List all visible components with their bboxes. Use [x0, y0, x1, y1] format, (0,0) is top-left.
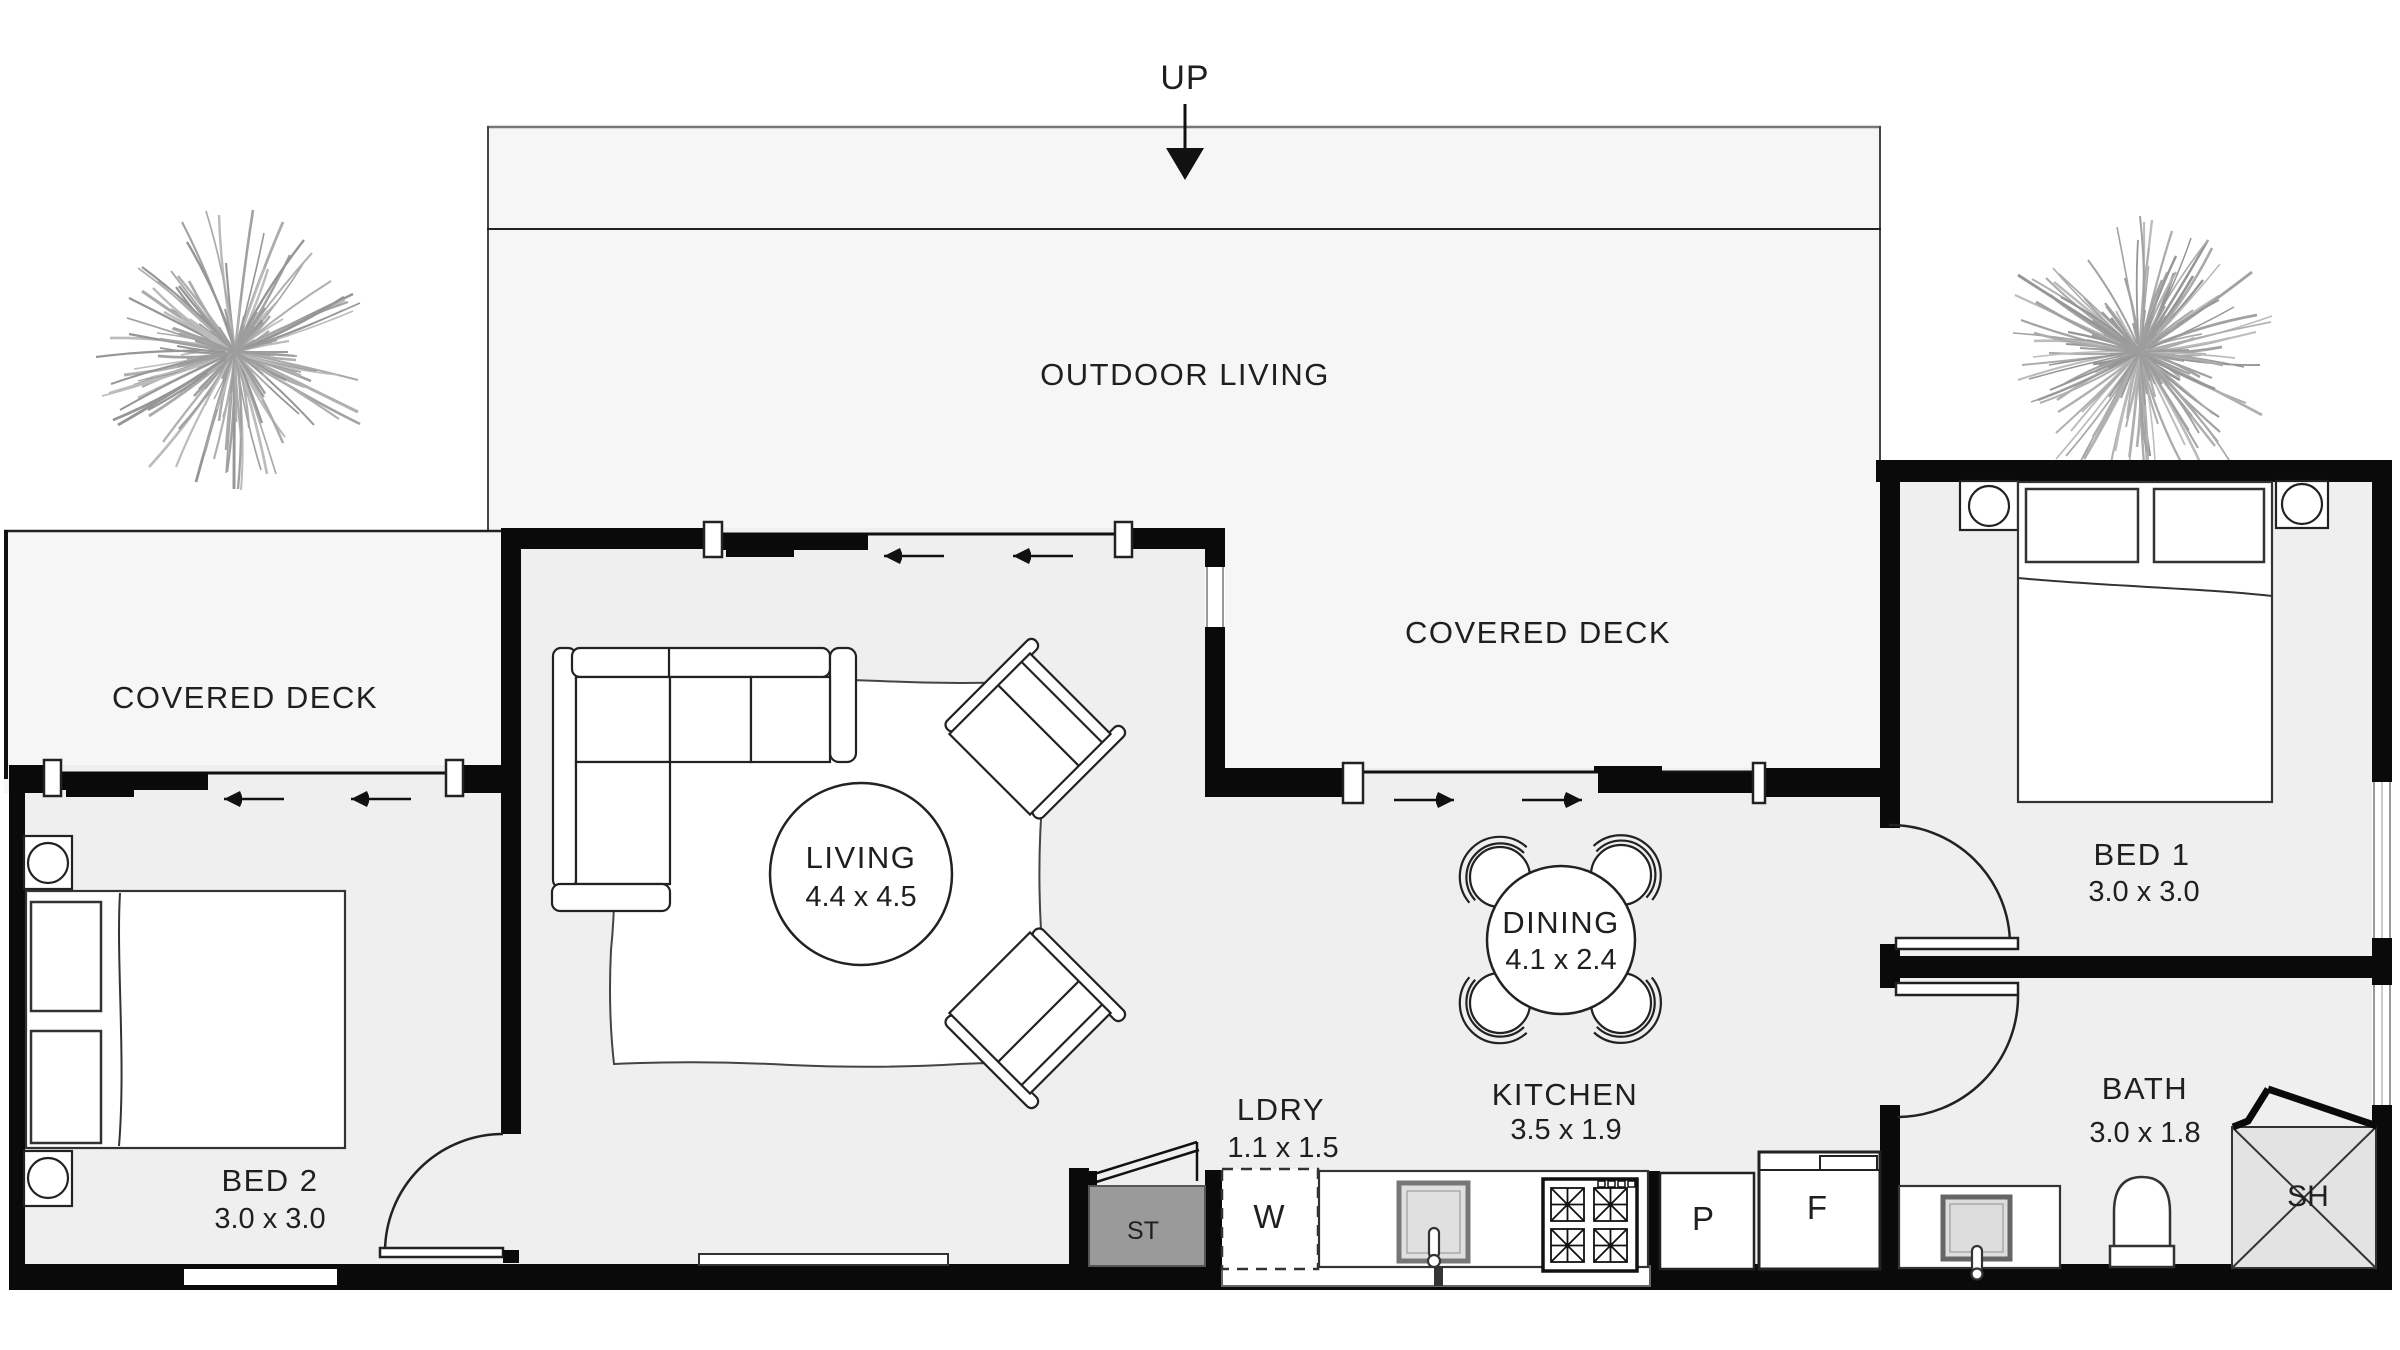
svg-text:KITCHEN: KITCHEN — [1492, 1077, 1639, 1112]
svg-text:UP: UP — [1160, 59, 1209, 97]
svg-text:1.1 x 1.5: 1.1 x 1.5 — [1227, 1132, 1338, 1164]
svg-text:W: W — [1253, 1198, 1285, 1235]
svg-text:LDRY: LDRY — [1237, 1092, 1325, 1127]
svg-text:SH: SH — [2287, 1180, 2329, 1213]
svg-text:BED 1: BED 1 — [2093, 837, 2190, 872]
svg-text:DINING: DINING — [1502, 905, 1620, 940]
svg-text:BATH: BATH — [2102, 1071, 2188, 1106]
svg-text:P: P — [1692, 1200, 1714, 1237]
svg-text:OUTDOOR LIVING: OUTDOOR LIVING — [1040, 357, 1330, 392]
svg-text:F: F — [1807, 1189, 1827, 1226]
svg-text:ST: ST — [1127, 1217, 1159, 1245]
svg-text:4.1 x 2.4: 4.1 x 2.4 — [1505, 944, 1616, 976]
svg-text:BED 2: BED 2 — [221, 1163, 318, 1198]
svg-text:COVERED DECK: COVERED DECK — [1405, 615, 1671, 650]
svg-text:LIVING: LIVING — [806, 840, 917, 875]
svg-text:3.0 x 1.8: 3.0 x 1.8 — [2089, 1117, 2200, 1149]
svg-text:3.0 x 3.0: 3.0 x 3.0 — [214, 1203, 325, 1235]
svg-text:4.4 x 4.5: 4.4 x 4.5 — [805, 881, 916, 913]
svg-text:COVERED DECK: COVERED DECK — [112, 680, 378, 715]
svg-text:3.5 x 1.9: 3.5 x 1.9 — [1510, 1114, 1621, 1146]
svg-text:3.0 x 3.0: 3.0 x 3.0 — [2088, 876, 2199, 908]
